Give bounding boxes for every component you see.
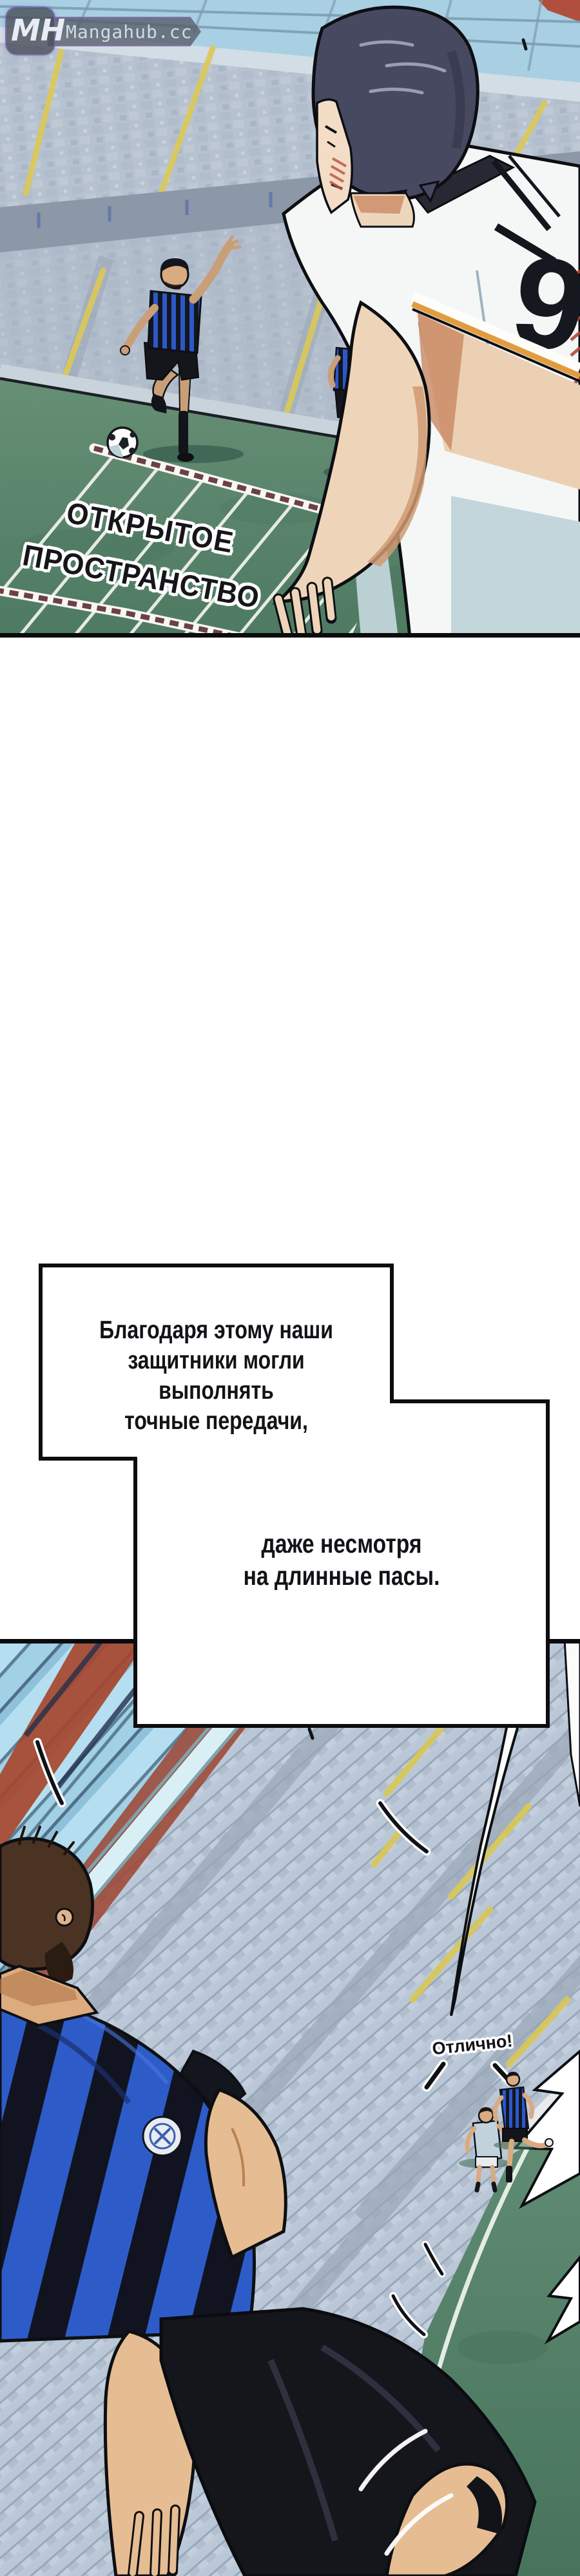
narration-paragraph-2: даже несмотря на длинные пасы. [173,1528,511,1592]
watermark-banner: Mangahub.cc [48,17,201,46]
narration-paragraph-1: Благодаря этому наши защитники могли вып… [72,1315,360,1436]
player-shadow [143,445,244,463]
comic-panel-long-pass-kick [0,1639,580,2576]
site-watermark-link[interactable]: Mangahub.cc MH [5,6,205,55]
panel2-artwork [0,1639,580,2576]
panel1-border [0,633,580,638]
narration-line: Благодаря этому наши [72,1315,360,1345]
narration-line: точные передачи, [72,1406,360,1436]
narration-line: даже несмотря [173,1528,511,1560]
soccer-ball [108,428,137,457]
narration-line: защитники могли выполнять [72,1345,360,1406]
logo-initials: MH [11,13,65,48]
watermark-site-name: Mangahub.cc [66,21,192,43]
narration-line: на длинные пасы. [173,1560,511,1592]
panel1-artwork: 9 [0,0,580,638]
comic-panel-stadium-open-space: 9 [0,0,580,638]
manga-reader-page: 9 [0,0,580,2576]
mangahub-logo-icon: MH [5,6,55,55]
